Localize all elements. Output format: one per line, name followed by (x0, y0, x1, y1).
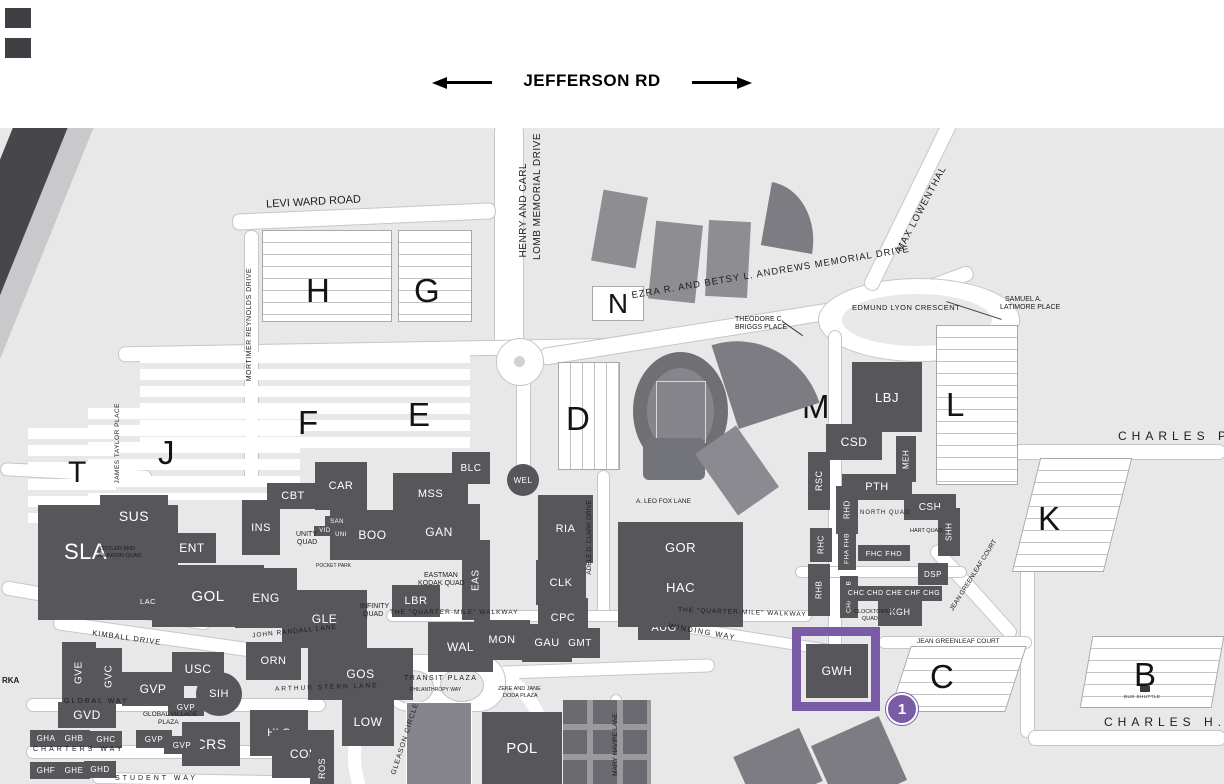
building-hac-label: HAC (618, 580, 743, 595)
road-label-adele-clark: ADELE D. CLARK DRIVE (586, 500, 593, 575)
building-rsc: RSC (808, 452, 830, 510)
place-label-pocket-park: POCKET PARK (316, 564, 351, 570)
road-label-lomb-2: LOMB MEMORIAL DRIVE (532, 133, 544, 260)
building-lbj: LBJ (852, 362, 922, 432)
lot-T-label: T (68, 458, 86, 488)
road-label-charters: CHARTERS WAY (33, 746, 125, 754)
place-label-clocktower-2: QUAD (862, 616, 878, 622)
building-pol: POL (482, 712, 562, 784)
west-arrow-shaft (447, 81, 492, 84)
marker-1[interactable]: 1 (886, 693, 918, 725)
road-label-quarter-mile-west: THE "QUARTER-MILE" WALKWAY (390, 609, 519, 616)
transit-island-east (440, 668, 484, 702)
road-label-briggs-2: BRIGGS PLACE (735, 324, 783, 332)
lot-L-label: L (946, 388, 964, 421)
road-label-mary-havire: MARY HAVIRE LANE (612, 713, 619, 776)
road-charles-h (1028, 730, 1224, 746)
road-label-latimore-1: SAMUEL A. (1005, 296, 1042, 304)
building-rhb: RHB (808, 564, 830, 616)
place-label-kodak-1: EASTMAN (424, 572, 458, 580)
building-fhc-fhd: FHC FHD (858, 545, 910, 561)
place-label-johnson-quad-2: JOHNSON QUAD (97, 553, 141, 559)
campus-map-page: JEFFERSON RD (0, 0, 1224, 784)
road-label-student: STUDENT WAY (115, 775, 198, 783)
road-label-lyon: EDMUND LYON CRESCENT (852, 304, 960, 313)
building-gos: GOS (308, 648, 413, 700)
building-clk: CLK (536, 560, 586, 605)
place-label-unity-1: UNITY (296, 531, 317, 539)
road-label-reynolds: MORTIMER REYNOLDS DRIVE (246, 268, 254, 381)
building-lac: LAC (128, 594, 168, 609)
road-adele-clark (597, 470, 610, 622)
building-gve: GVE (62, 642, 96, 704)
lot-C-label: C (930, 660, 954, 693)
place-label-johnson-quad-1: OSTLER AND (100, 546, 135, 552)
lot-F-label: F (298, 406, 318, 439)
building-sus: SUS (100, 495, 168, 537)
place-label-kodak-2: KODAK QUAD (418, 580, 465, 588)
east-arrow-shaft (692, 81, 737, 84)
road-label-charles-h: CHARLES H. W (1104, 716, 1224, 730)
campus-map: N H G J T F E D M L K C B BUS SHUTTLE (0, 128, 1224, 784)
building-gor-label: GOR (618, 540, 743, 555)
legend-fragment-top (5, 8, 31, 28)
building-ghb: GHB (58, 730, 90, 747)
place-label-infinity-1: INFINITY (360, 603, 389, 611)
building-uni: UNI (330, 530, 352, 540)
road-label-latimore-2: LATIMORE PLACE (1000, 304, 1060, 312)
lot-J-label: J (158, 436, 175, 469)
lot-H-label: H (306, 274, 330, 307)
building-gle: GLE (282, 590, 367, 648)
road-label-briggs-1: THEODORE C. (735, 316, 783, 324)
place-label-north-quad: NORTH QUAD (860, 510, 910, 517)
place-label-transit: TRANSIT PLAZA (404, 675, 477, 683)
building-ins: INS (242, 500, 280, 555)
lot-K-label: K (1038, 502, 1060, 535)
stadium-soccer-lines (656, 381, 706, 443)
building-low: LOW (342, 698, 394, 746)
building-ghd: GHD (84, 761, 116, 778)
building-fha-fhb: FHA FHB (838, 528, 856, 570)
place-label-doda-2: DODA PLAZA (503, 693, 538, 699)
road-label-lomb-1: HENRY AND CARL (518, 163, 530, 257)
road-label-global-way: GLOBAL WAY (64, 698, 129, 706)
place-label-unity-2: QUAD (297, 539, 317, 547)
building-ros: ROS (310, 752, 334, 784)
west-arrow-icon (432, 77, 447, 89)
field-southeast-2 (811, 716, 907, 784)
building-dsp: DSP (918, 563, 948, 585)
field-southeast-1 (733, 728, 822, 784)
building-rka-label: RKA (2, 676, 19, 685)
road-label-charles-p: CHARLES P (1118, 430, 1224, 444)
lot-G-label: G (414, 274, 440, 307)
building-gvc: GVC (96, 648, 122, 704)
baseball-fan-north (761, 182, 823, 254)
legend-fragment-bottom (5, 38, 31, 58)
lot-E-label: E (408, 398, 430, 431)
highlight-box-gwh[interactable] (792, 627, 880, 711)
road-label-leo-fox: A. LEO FOX LANE (636, 498, 691, 505)
place-label-infinity-2: QUAD (363, 611, 383, 619)
building-blc: BLC (452, 452, 490, 484)
building-orn: ORN (246, 642, 301, 680)
lot-K-area (1012, 458, 1132, 572)
place-label-doda-1: ZEKE AND JANE (498, 686, 541, 692)
bus-shuttle-icon (1140, 686, 1150, 692)
building-car: CAR (315, 462, 367, 510)
building-csd: CSD (826, 424, 882, 460)
practice-field-1 (591, 190, 648, 269)
building-rhc: RHC (810, 528, 832, 562)
place-label-philanthropy: PHILANTHROPY WAY (410, 688, 461, 694)
building-wel: WEL (507, 464, 539, 496)
building-gmt: GMT (560, 628, 600, 658)
building-gvp-4: GVP (164, 736, 200, 754)
east-arrow-icon (737, 77, 752, 89)
softball-field (643, 438, 705, 480)
building-chc-chg: CHC CHD CHE CHF CHG (846, 586, 942, 601)
roundabout-island (514, 356, 525, 367)
building-rhd: RHD (836, 486, 858, 534)
building-ria: RIA (538, 495, 593, 563)
place-label-gv-plaza-2: PLAZA (158, 719, 179, 726)
road-label-taylor: JAMES TAYLOR PLACE (114, 403, 121, 484)
place-label-clocktower-1: CLOCKTOWER (854, 609, 893, 615)
place-label-gv-plaza-1: GLOBAL VILLAGE (143, 711, 198, 718)
bus-shuttle-label: BUS SHUTTLE (1124, 694, 1161, 699)
building-eas: EAS (462, 540, 490, 620)
road-label-greenleaf-horizontal: JEAN GREENLEAF COURT (917, 638, 1000, 645)
jefferson-rd-label: JEFFERSON RD (517, 71, 667, 91)
building-ent: ENT (168, 533, 216, 563)
lot-D-label: D (566, 402, 590, 435)
place-label-hart-quad: HART QUAD (910, 528, 942, 534)
tennis-courts (563, 700, 651, 784)
